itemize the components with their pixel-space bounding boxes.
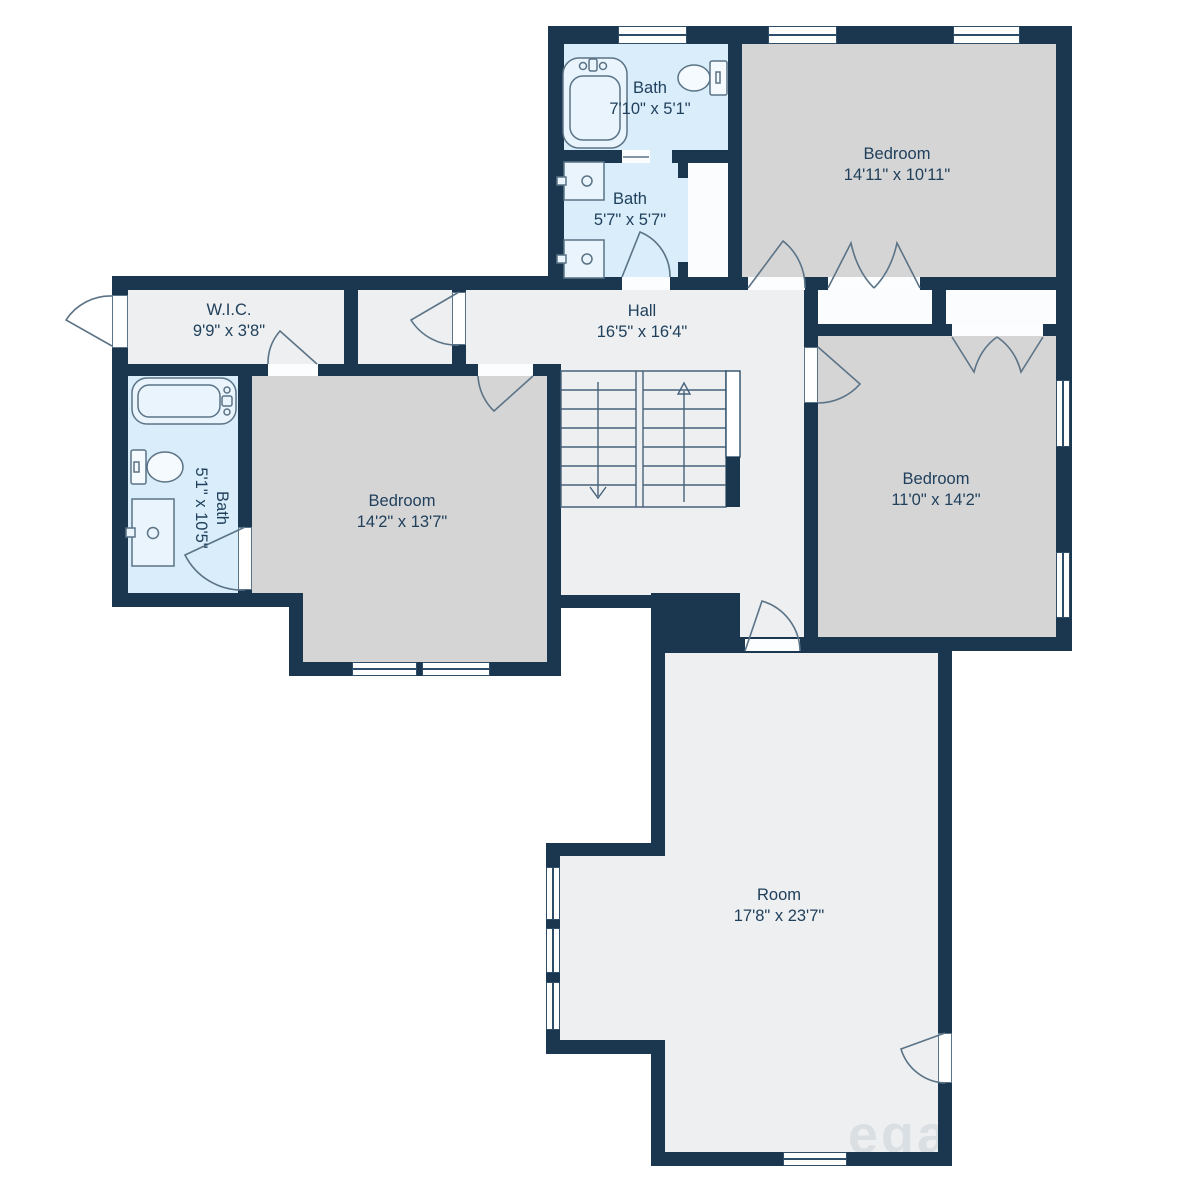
sink-icon [557, 240, 604, 278]
room-label-bedroom-top: Bedroom 14'11" x 10'11" [844, 144, 950, 186]
room-label-bath-mid: Bath 5'7" x 5'7" [594, 189, 666, 231]
room-dims: 9'9" x 3'8" [193, 321, 265, 342]
room-dims: 16'5" x 16'4" [597, 322, 688, 343]
door-swing [748, 241, 805, 288]
room-dims: 17'8" x 23'7" [734, 906, 825, 927]
room-name: Bath [211, 467, 232, 548]
room-name: W.I.C. [193, 300, 265, 321]
room-name: Hall [597, 301, 688, 322]
room-label-bath-left: Bath 5'1" x 10'5" [190, 467, 232, 548]
door-swing [268, 331, 317, 364]
stair-arrow-down [590, 382, 606, 498]
stair-arrow-up [678, 383, 690, 502]
room-label-bedroom-left: Bedroom 14'2" x 13'7" [357, 491, 448, 533]
door-swing [901, 1033, 945, 1083]
room-name: Bedroom [844, 144, 950, 165]
room-label-room: Room 17'8" x 23'7" [734, 885, 825, 927]
stairs [561, 371, 740, 507]
room-name: Bedroom [891, 469, 980, 490]
door-swing [411, 292, 459, 345]
sink-icon [126, 499, 174, 566]
floor-plan: ega [0, 0, 1200, 1203]
room-dims: 14'11" x 10'11" [844, 165, 950, 186]
door-swing [818, 347, 860, 403]
door-swing [622, 232, 670, 277]
room-name: Room [734, 885, 825, 906]
folding-closet-door [828, 243, 920, 288]
door-swing [66, 296, 112, 346]
room-name: Bedroom [357, 491, 448, 512]
door-swings [66, 157, 1043, 1083]
stair-divider [636, 371, 643, 507]
folding-closet-door [952, 337, 1043, 372]
toilet-icon [131, 450, 183, 484]
room-dims: 5'1" x 10'5" [190, 467, 211, 548]
room-dims: 7'10" x 5'1" [609, 99, 690, 120]
door-swing [745, 601, 800, 651]
room-label-bath-top: Bath 7'10" x 5'1" [609, 78, 690, 120]
room-dims: 5'7" x 5'7" [594, 210, 666, 231]
room-name: Bath [609, 78, 690, 99]
bathtub-icon [132, 378, 236, 424]
plan-graphics [0, 0, 1200, 1203]
stair-railing [726, 371, 740, 457]
room-label-wic: W.I.C. 9'9" x 3'8" [193, 300, 265, 342]
room-name: Bath [594, 189, 666, 210]
room-label-bedroom-right: Bedroom 11'0" x 14'2" [891, 469, 980, 511]
stair-wall-stub [726, 457, 740, 507]
room-dims: 11'0" x 14'2" [891, 490, 980, 511]
room-label-hall: Hall 16'5" x 16'4" [597, 301, 688, 343]
room-dims: 14'2" x 13'7" [357, 512, 448, 533]
door-swing [478, 376, 533, 411]
